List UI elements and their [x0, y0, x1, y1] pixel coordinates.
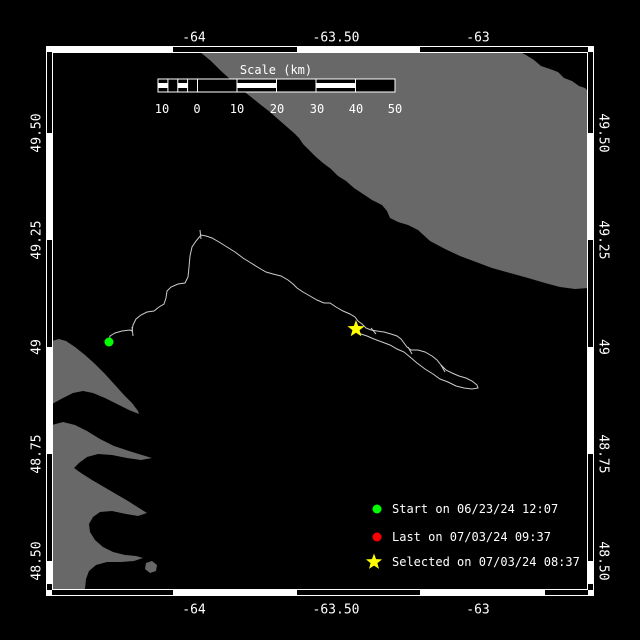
- legend-marker-2: [366, 554, 382, 569]
- scalebar-number: 20: [270, 103, 284, 115]
- latitude-label-right: 49.25: [597, 220, 610, 259]
- scalebar-stripe: [237, 83, 277, 88]
- scalebar-number: 50: [388, 103, 402, 115]
- legend-label-0: Start on 06/23/24 12:07: [392, 503, 558, 515]
- latitude-label-left: 49.25: [31, 220, 44, 259]
- scalebar-number: 10: [155, 103, 169, 115]
- scalebar-title: Scale (km): [240, 64, 312, 76]
- frame-segment-left: [46, 347, 52, 454]
- land-gaspe-upper-peninsula: [52, 339, 139, 414]
- scalebar-stripe: [178, 83, 188, 88]
- frame-corner: [46, 590, 52, 596]
- latitude-label-right: 49: [597, 339, 610, 355]
- latitude-label-left: 48.50: [31, 541, 44, 580]
- frame-corner: [588, 46, 594, 52]
- latitude-label-right: 48.75: [597, 434, 610, 473]
- frame-segment-right: [588, 347, 594, 454]
- track-direction-tick: [200, 230, 201, 239]
- frame-corner: [588, 590, 594, 596]
- longitude-label-top: -63.50: [313, 32, 360, 45]
- start-marker[interactable]: [105, 338, 114, 347]
- legend-marker-0: [373, 505, 382, 514]
- scalebar-stripe: [316, 83, 356, 88]
- longitude-label-bottom: -64: [182, 604, 205, 617]
- latitude-label-right: 48.50: [597, 541, 610, 580]
- frame-segment-bottom: [173, 590, 297, 596]
- latitude-label-right: 49.50: [597, 113, 610, 152]
- longitude-label-bottom: -63: [466, 604, 489, 617]
- frame-segment-bottom: [420, 590, 545, 596]
- longitude-label-top: -64: [182, 32, 205, 45]
- land-small-island: [145, 561, 157, 573]
- latitude-label-left: 49: [31, 339, 44, 355]
- legend-label-2: Selected on 07/03/24 08:37: [392, 556, 580, 568]
- scalebar-number: 0: [193, 103, 200, 115]
- legend-label-1: Last on 07/03/24 09:37: [392, 531, 551, 543]
- longitude-label-top: -63: [466, 32, 489, 45]
- latitude-label-left: 49.50: [31, 113, 44, 152]
- land-gaspe-main: [52, 422, 152, 589]
- frame-segment-left: [46, 561, 52, 584]
- frame-segment-right: [588, 133, 594, 240]
- drifter-track-map: -64-63.50-63-64-63.50-6349.5049.254948.7…: [0, 0, 640, 640]
- frame-corner: [46, 46, 52, 52]
- map-plot[interactable]: [0, 0, 640, 640]
- legend-marker-1: [373, 533, 382, 542]
- latitude-label-left: 48.75: [31, 434, 44, 473]
- longitude-label-bottom: -63.50: [313, 604, 360, 617]
- drifter-track[interactable]: [109, 235, 478, 389]
- scalebar-stripe: [158, 83, 168, 88]
- frame-segment-top: [297, 46, 420, 52]
- frame-segment-left: [46, 133, 52, 240]
- frame-segment-right: [588, 561, 594, 584]
- scalebar-number: 10: [230, 103, 244, 115]
- scalebar-number: 30: [310, 103, 324, 115]
- scalebar-number: 40: [349, 103, 363, 115]
- frame-segment-top: [52, 46, 173, 52]
